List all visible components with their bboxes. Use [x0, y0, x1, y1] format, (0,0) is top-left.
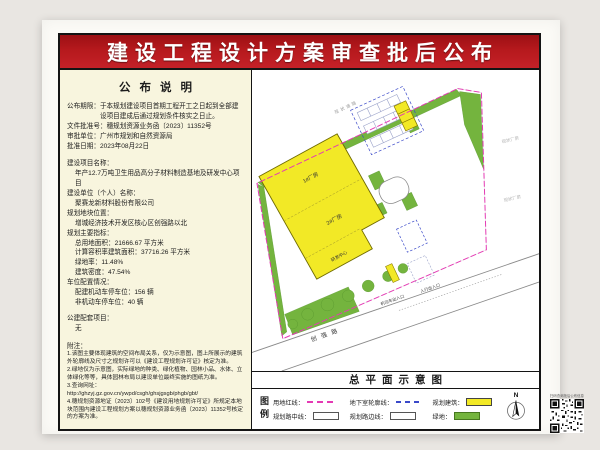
notice-line: 2.绿地仅为示意图，实际绿地的种类、绿化植物、园林小品、水体、立体绿化等等，具体…: [67, 367, 244, 383]
legend-items: 用地红线： 地下室轮廓线： 规划建筑：: [273, 398, 493, 421]
notice-line: 附注：: [67, 342, 244, 352]
existing-factory-label-2: 现状厂房: [503, 193, 522, 204]
legend-item-road-edge: 规划路边线：: [350, 412, 423, 421]
page-title: 建设工程设计方案审查批后公布: [100, 37, 499, 67]
site-plan-svg: 创强路: [252, 70, 539, 371]
pedestrian-entrance-label: 人行出入口: [419, 281, 441, 293]
legend-item-building: 规划建筑：: [433, 398, 493, 407]
legend: 图例 用地红线： 地下室轮廓线： 规划建筑：: [252, 389, 539, 429]
road-center-swatch: [313, 412, 339, 420]
site-plan-title: 总平面示意图: [252, 371, 539, 389]
road-edge-swatch: [390, 412, 416, 420]
notice-line: 建筑密度：47.54%: [67, 268, 244, 278]
notice-lines: 公布期限：于本规划建设项目首期工程开工之日起到全部建设项目建成后通过规划条件核实…: [67, 102, 244, 422]
notice-line: 建设单位（个人）名称：: [67, 189, 244, 199]
notice-line: 计算容积率建筑面积：37716.26 平方米: [67, 248, 244, 258]
legend-item-green: 绿地：: [433, 412, 493, 421]
notice-line: 增城经济技术开发区核心区创强路以北: [67, 219, 244, 229]
existing-road-label: 现状道路: [333, 99, 359, 116]
notice-panel: 公布说明 公布期限：于本规划建设项目首期工程开工之日起到全部建设项目建成后通过规…: [60, 70, 252, 429]
notice-line: 规划地块位置：: [67, 209, 244, 219]
qr-caption: 扫码查询批后公布信息: [546, 394, 588, 398]
qr-code: 扫码查询批后公布信息: [546, 394, 588, 438]
notice-line: 配建机动车停车位：156 辆: [67, 288, 244, 298]
title-banner: 建设工程设计方案审查批后公布: [58, 33, 541, 70]
notice-line: 规划主要指标：: [67, 229, 244, 239]
document-body: 公布说明 公布期限：于本规划建设项目首期工程开工之日起到全部建设项目建成后通过规…: [58, 70, 541, 431]
notice-line: 总用地面积：21666.67 平方米: [67, 239, 244, 249]
notice-line: 无: [67, 324, 244, 334]
notice-line: 1.该图主要体现建筑的空间布局关系，仅为示意图，图上所展示的建筑外轮廓线及尺寸之…: [67, 351, 244, 367]
legend-item-redline: 用地红线：: [273, 398, 340, 407]
redline-swatch: [307, 401, 333, 403]
notice-line: 非机动车停车位：40 辆: [67, 298, 244, 308]
green-swatch: [454, 412, 480, 420]
legend-item-basement: 地下室轮廓线：: [350, 398, 423, 407]
legend-heading: 图例: [259, 396, 268, 422]
road-name-label: 创强路: [310, 325, 344, 343]
notice-line: 建设项目名称：: [67, 159, 244, 169]
notice-heading: 公布说明: [67, 75, 244, 102]
notice-line: 文件批准号：穗规划资源业务函〔2023〕11352号: [67, 122, 244, 132]
notice-line: 3.查询网址：: [67, 383, 244, 391]
north-label: N: [514, 392, 519, 399]
notice-paper: 建设工程设计方案审查批后公布 公布说明 公布期限：于本规划建设项目首期工程开工之…: [42, 20, 560, 434]
site-plan-panel: 创强路: [252, 70, 539, 429]
legend-item-road-center: 规划路中线：: [273, 412, 340, 421]
building-swatch: [466, 398, 492, 406]
qr-code-icon: [550, 399, 584, 433]
north-arrow-icon: N: [503, 390, 529, 424]
notice-line: http://ghzyj.gz.gov.cn/ywpd/csgh/ghsjgsg…: [67, 391, 244, 399]
notice-line: 公布期限：于本规划建设项目首期工程开工之日起到全部建设项目建成后通过规划条件核实…: [67, 102, 244, 122]
notice-line: 年产12.7万吨卫生用品高分子材料制造基地及研发中心项目: [67, 169, 244, 189]
notice-line: 绿地率：11.48%: [67, 258, 244, 268]
notice-line: 审批单位：广州市规划和自然资源局: [67, 132, 244, 142]
photo-background: 建设工程设计方案审查批后公布 公布说明 公布期限：于本规划建设项目首期工程开工之…: [0, 0, 600, 450]
notice-line: 公建配套项目：: [67, 314, 244, 324]
existing-factory-label-1: 现状厂房: [501, 134, 520, 145]
basement-swatch: [396, 401, 422, 403]
site-plan-map: 创强路: [252, 70, 539, 371]
notice-line: 4.穗规划资源地证〔2023〕102号《建设用地规划许可证》所规定本地块范围内建…: [67, 399, 244, 423]
notice-line: 车位配置情况：: [67, 278, 244, 288]
notice-document: 建设工程设计方案审查批后公布 公布说明 公布期限：于本规划建设项目首期工程开工之…: [58, 33, 541, 431]
notice-line: 聚赛龙新材料股份有限公司: [67, 199, 244, 209]
north-arrow: N: [501, 390, 531, 429]
notice-line: 批准日期：2023年08月22日: [67, 142, 244, 152]
